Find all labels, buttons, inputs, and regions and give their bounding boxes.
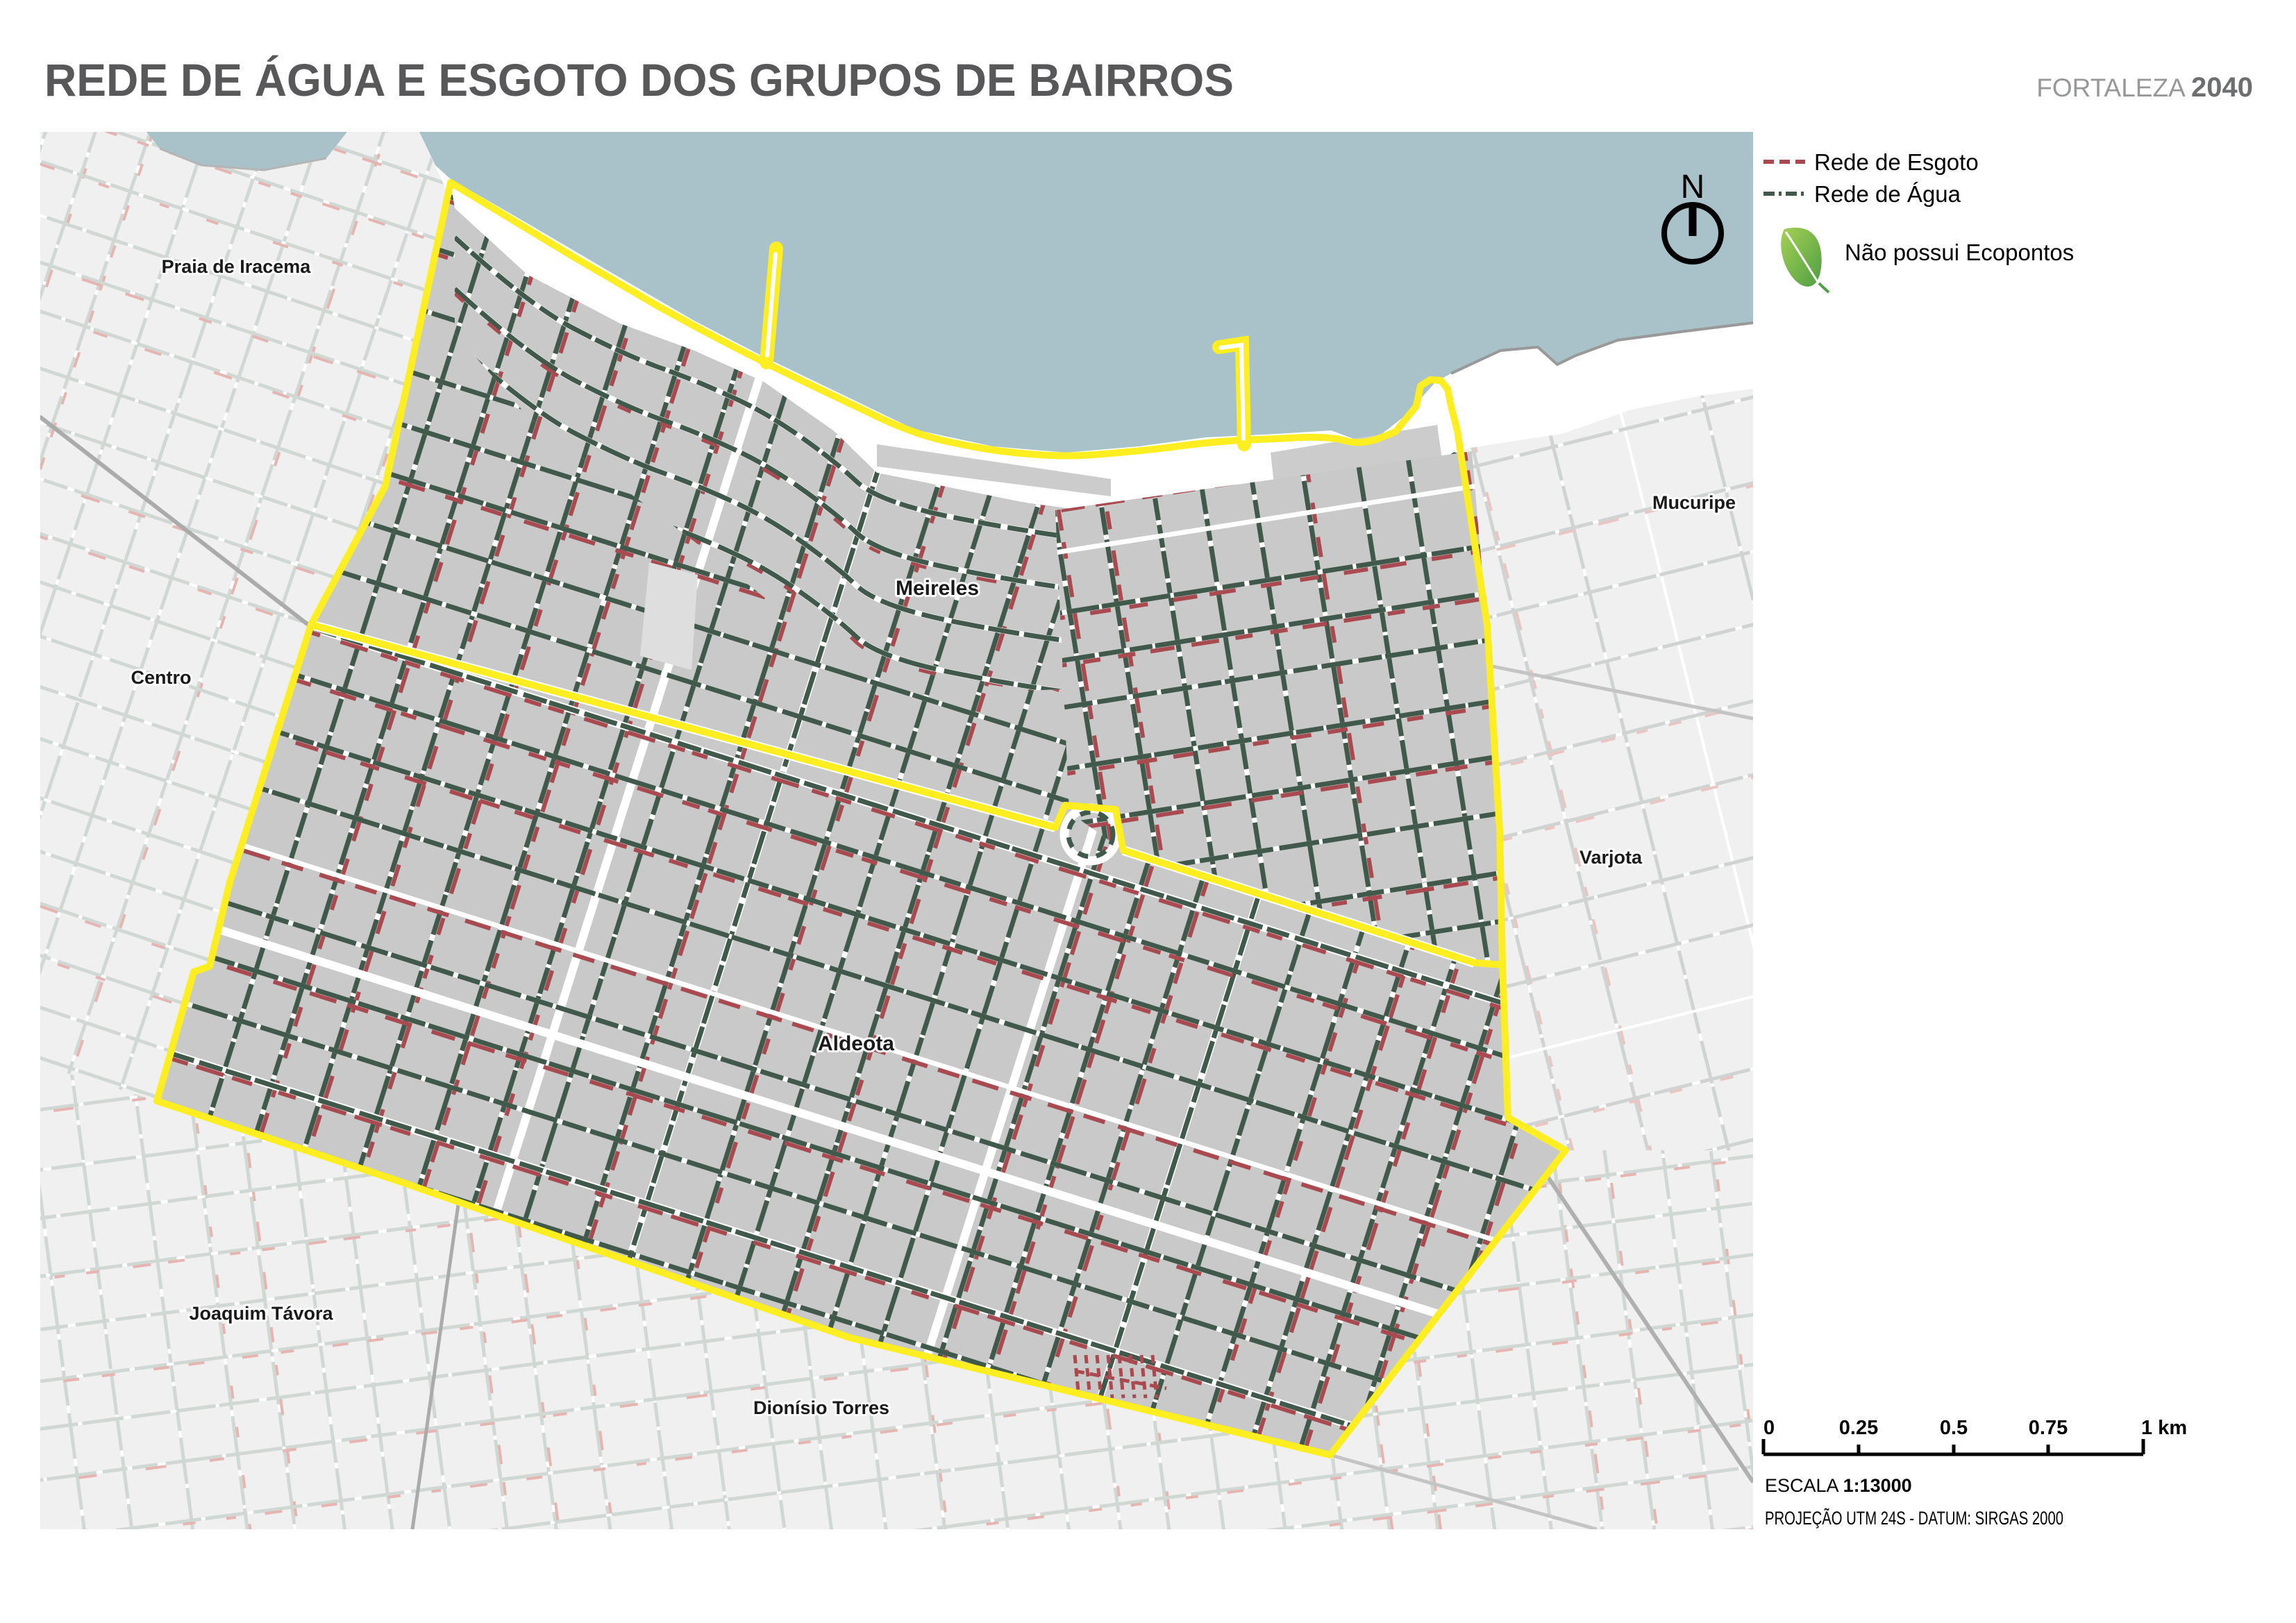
svg-text:0: 0 [1763, 1417, 1775, 1439]
svg-text:Não possui Ecopontos: Não possui Ecopontos [1845, 239, 2074, 265]
svg-text:Varjota: Varjota [1579, 847, 1643, 868]
svg-text:0.25: 0.25 [1839, 1417, 1878, 1439]
svg-text:PROJEÇÃO UTM 24S - DATUM: SIRG: PROJEÇÃO UTM 24S - DATUM: SIRGAS 2000 [1765, 1507, 2063, 1529]
svg-text:ESCALA 1:13000: ESCALA 1:13000 [1765, 1475, 1912, 1496]
svg-text:Rede de Água: Rede de Água [1814, 181, 1961, 207]
svg-text:Mucuripe: Mucuripe [1652, 492, 1736, 513]
svg-text:Aldeota: Aldeota [818, 1032, 894, 1055]
svg-text:FORTALEZA 2040: FORTALEZA 2040 [2036, 72, 2253, 103]
svg-text:Meireles: Meireles [896, 577, 979, 600]
svg-text:0.75: 0.75 [2029, 1417, 2068, 1439]
svg-text:Dionísio Torres: Dionísio Torres [753, 1397, 889, 1418]
svg-text:Praia de Iracema: Praia de Iracema [162, 256, 312, 277]
svg-text:Rede de Esgoto: Rede de Esgoto [1814, 149, 1979, 175]
svg-text:N: N [1681, 169, 1705, 205]
svg-text:Centro: Centro [131, 667, 192, 688]
svg-text:0.5: 0.5 [1940, 1417, 1968, 1439]
svg-text:Joaquim Távora: Joaquim Távora [189, 1303, 333, 1324]
svg-text:1 km: 1 km [2141, 1417, 2187, 1439]
svg-text:REDE DE ÁGUA E ESGOTO DOS GRUP: REDE DE ÁGUA E ESGOTO DOS GRUPOS DE BAIR… [44, 54, 1234, 106]
